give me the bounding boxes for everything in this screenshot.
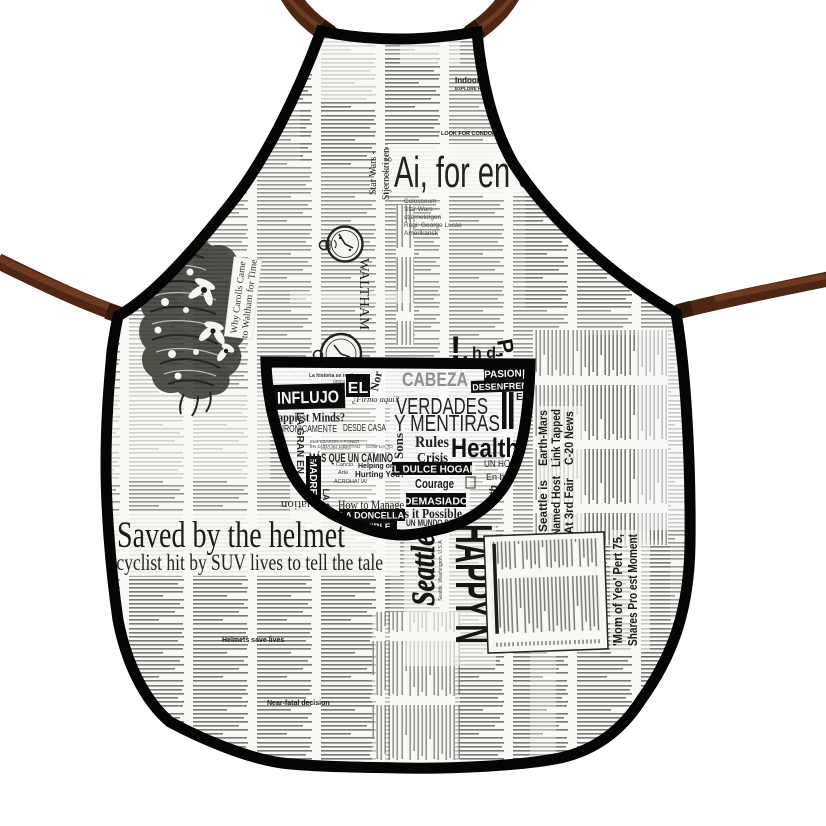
svg-text:LOOK FOR CONDORS: LOOK FOR CONDORS xyxy=(441,131,500,137)
svg-text:Regi: George Lucas: Regi: George Lucas xyxy=(404,222,463,229)
svg-text:ACROHAI IA!: ACROHAI IA! xyxy=(334,479,368,485)
svg-text:stjernekrigen: stjernekrigen xyxy=(404,214,442,221)
svg-text:CONFLIA.TO: CONFLIA.TO xyxy=(366,444,393,449)
svg-text:Cancio: Cancio xyxy=(336,462,353,468)
svg-text:'Mom of Yeo' Pert 75,: 'Mom of Yeo' Pert 75, xyxy=(610,534,625,646)
svg-text:Seattle, Washington, U.S.A.: Seattle, Washington, U.S.A. xyxy=(438,539,444,601)
svg-text:Seattle is: Seattle is xyxy=(538,480,550,532)
svg-text:Link Tapped: Link Tapped xyxy=(551,409,563,467)
svg-text:Sons: Sons xyxy=(391,433,406,459)
svg-text:Helmets save lives: Helmets save lives xyxy=(222,637,284,644)
svg-text:Named Host: Named Host xyxy=(551,476,563,536)
svg-text:LA GRAN EN: LA GRAN EN xyxy=(294,412,305,474)
svg-text:Happiest Minds?: Happiest Minds? xyxy=(270,410,345,425)
svg-text:Earth-Mars: Earth-Mars xyxy=(538,410,550,466)
svg-text:Amerikansk: Amerikansk xyxy=(404,230,439,237)
svg-text:Rules: Rules xyxy=(415,434,449,451)
svg-text:Courage: Courage xyxy=(415,476,454,491)
svg-text:Colosseum: Colosseum xyxy=(404,198,437,205)
svg-text:Star Wars -: Star Wars - xyxy=(404,206,437,213)
svg-text:¿Firmo aquí?: ¿Firmo aquí? xyxy=(352,394,400,404)
svg-text:Star Wars -: Star Wars - xyxy=(367,151,379,195)
svg-text:torcyclist hit by SUV lives to: torcyclist hit by SUV lives to tell the … xyxy=(97,550,383,575)
svg-text:WALTHAM: WALTHAM xyxy=(356,258,371,331)
svg-text:At 3rd Fair: At 3rd Fair xyxy=(564,477,576,534)
svg-text:Helping or: Helping or xyxy=(358,463,393,470)
svg-text:EN DUDA SU LIBERTAD: EN DUDA SU LIBERTAD xyxy=(310,444,361,449)
svg-text:Shares Pro est Moment: Shares Pro est Moment xyxy=(625,533,640,646)
svg-text:Hurting You?: Hurting You? xyxy=(355,470,405,479)
svg-text:DESDE CASA: DESDE CASA xyxy=(343,423,386,434)
svg-text:Arte: Arte xyxy=(338,470,348,476)
svg-text:Stjernekrigen: Stjernekrigen xyxy=(380,148,392,200)
svg-text:C-20 News: C-20 News xyxy=(564,411,576,465)
svg-text:CABEZA: CABEZA xyxy=(402,370,468,391)
svg-text:IRÓNICAMENTE: IRÓNICAMENTE xyxy=(282,422,337,435)
svg-text:INFLUJO: INFLUJO xyxy=(277,387,339,408)
svg-text:DESENFREN: DESENFREN xyxy=(472,381,528,393)
svg-text:Near-fatal decision: Near-fatal decision xyxy=(267,700,330,707)
svg-text:Seattle: Seattle xyxy=(406,534,442,605)
